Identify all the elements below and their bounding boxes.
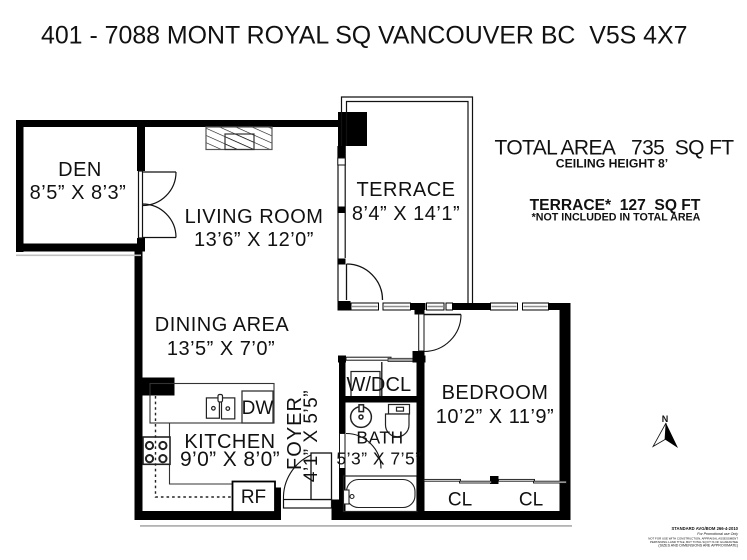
svg-text:(SIZES AND DIMENSIONS ARE APPR: (SIZES AND DIMENSIONS ARE APPROXIMATE) [658, 544, 738, 548]
svg-text:CL: CL [448, 490, 472, 511]
svg-text:9’0” X 8’0”: 9’0” X 8’0” [180, 448, 280, 471]
svg-text:DINING AREA: DINING AREA [155, 314, 290, 336]
svg-text:13’6” X 12’0”: 13’6” X 12’0” [194, 229, 314, 251]
svg-text:LIVING ROOM: LIVING ROOM [185, 206, 324, 228]
svg-text:TERRACE: TERRACE [356, 179, 455, 201]
svg-text:CL: CL [519, 490, 543, 511]
svg-text:13’5” X 7’0”: 13’5” X 7’0” [167, 338, 275, 360]
svg-text:DEN: DEN [58, 159, 102, 181]
svg-text:For Promotional use Only: For Promotional use Only [697, 532, 738, 536]
svg-text:10’2” X 11’9”: 10’2” X 11’9” [436, 406, 554, 428]
svg-text:8’5” X 8’3”: 8’5” X 8’3” [30, 182, 127, 204]
svg-text:CEILING HEIGHT 8’: CEILING HEIGHT 8’ [556, 157, 668, 171]
svg-text:BEDROOM: BEDROOM [442, 382, 549, 404]
svg-text:N: N [662, 414, 669, 424]
svg-text:*NOT INCLUDED IN TOTAL AREA: *NOT INCLUDED IN TOTAL AREA [532, 212, 701, 224]
svg-text:STANDARD AVG/BOM 266-4-2010: STANDARD AVG/BOM 266-4-2010 [672, 526, 739, 531]
svg-text:W/D: W/D [347, 374, 386, 396]
svg-text:401 - 7088 MONT ROYAL SQ VANCO: 401 - 7088 MONT ROYAL SQ VANCOUVER BC V5… [41, 22, 687, 50]
svg-text:8’4” X 14’1”: 8’4” X 14’1” [352, 203, 460, 225]
svg-text:5’3” X 7’5”: 5’3” X 7’5” [336, 449, 421, 469]
svg-text:CL: CL [386, 374, 412, 396]
svg-text:4’1” X 5’5”: 4’1” X 5’5” [301, 390, 322, 482]
svg-text:BATH: BATH [356, 428, 403, 448]
svg-text:RF: RF [241, 487, 266, 508]
svg-text:DW: DW [242, 398, 274, 419]
